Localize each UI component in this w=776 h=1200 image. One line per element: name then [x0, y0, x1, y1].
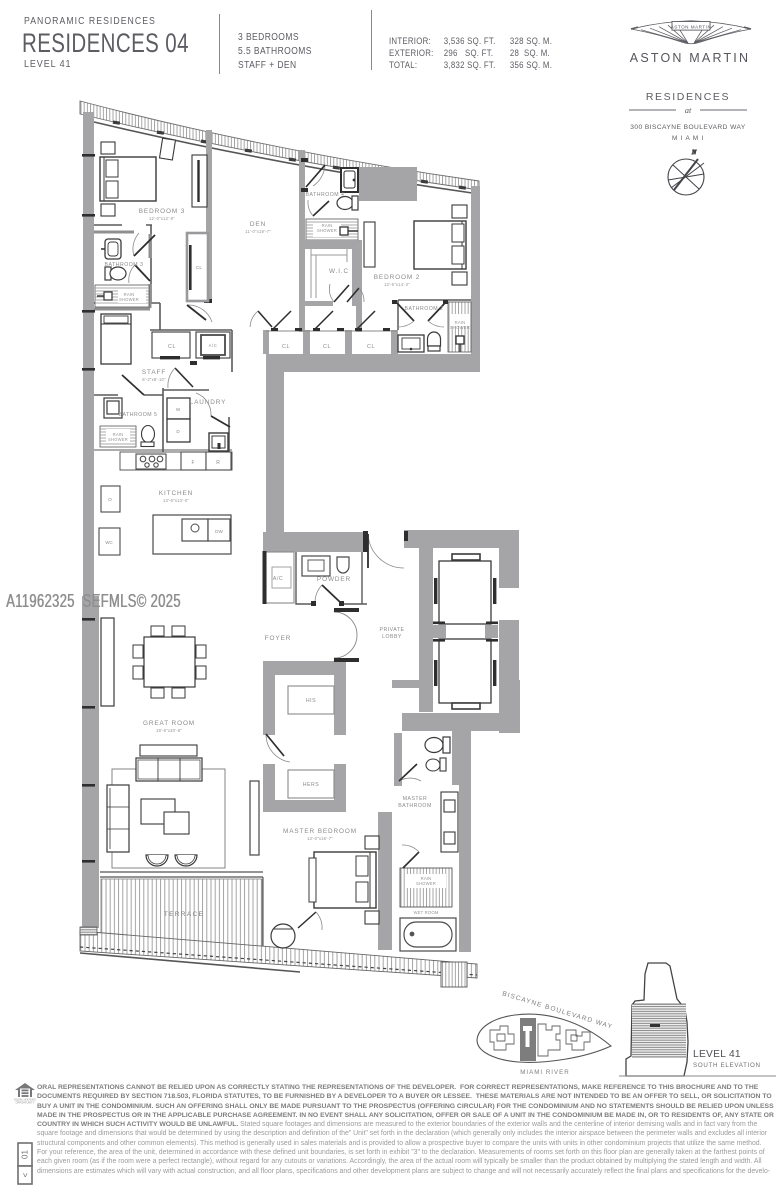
svg-text:LOBBY: LOBBY	[382, 634, 402, 640]
svg-text:13'-0"x16'-7": 13'-0"x16'-7"	[307, 836, 333, 841]
svg-text:19'-6"x30'-6": 19'-6"x30'-6"	[156, 728, 182, 733]
svg-text:PRIVATE: PRIVATE	[380, 627, 405, 633]
svg-text:RESIDENCES: RESIDENCES	[646, 91, 730, 103]
svg-text:R: R	[216, 460, 220, 466]
svg-text:CL: CL	[367, 344, 375, 350]
svg-text:SHOWER: SHOWER	[317, 228, 337, 233]
svg-text:HERS: HERS	[303, 782, 319, 788]
svg-text:MASTER: MASTER	[403, 796, 428, 802]
svg-text:BATHROOM 2: BATHROOM 2	[405, 306, 444, 312]
svg-text:HIS: HIS	[306, 698, 316, 704]
svg-text:LAUNDRY: LAUNDRY	[190, 399, 227, 406]
svg-text:GREAT ROOM: GREAT ROOM	[143, 720, 195, 727]
svg-text:W: W	[176, 407, 181, 412]
svg-text:CL: CL	[168, 344, 176, 350]
svg-text:BATHROOM 3: BATHROOM 3	[105, 262, 144, 268]
svg-text:BEDROOM 3: BEDROOM 3	[139, 208, 185, 215]
svg-text:BATHROOM 4: BATHROOM 4	[306, 192, 345, 198]
svg-text:SHOWER: SHOWER	[119, 297, 139, 302]
svg-text:BATHROOM: BATHROOM	[398, 803, 432, 809]
svg-text:O: O	[108, 497, 112, 503]
svg-text:SHOWER: SHOWER	[416, 881, 436, 886]
svg-text:ASTON MARTIN: ASTON MARTIN	[671, 25, 712, 30]
svg-text:BEDROOM 2: BEDROOM 2	[374, 274, 420, 281]
svg-text:8'-2"x8'-10": 8'-2"x8'-10"	[142, 377, 166, 382]
svg-text:CL: CL	[282, 344, 290, 350]
svg-text:WET ROOM: WET ROOM	[413, 910, 438, 915]
svg-text:OPPORTUNITY: OPPORTUNITY	[16, 1100, 35, 1104]
svg-text:01: 01	[21, 1150, 30, 1159]
svg-text:13'-6"x13'-0": 13'-6"x13'-0"	[163, 498, 189, 503]
svg-text:FOYER: FOYER	[265, 635, 292, 642]
svg-text:DEN: DEN	[250, 221, 266, 228]
svg-text:A/C: A/C	[209, 343, 218, 348]
svg-text:11'-0"x19'-7": 11'-0"x19'-7"	[245, 229, 271, 234]
svg-text:CL: CL	[323, 344, 331, 350]
svg-text:LEVEL 41: LEVEL 41	[693, 1049, 741, 1060]
svg-text:BATHROOM 5: BATHROOM 5	[119, 412, 158, 418]
svg-text:M I A M I: M I A M I	[672, 135, 704, 142]
svg-text:F: F	[191, 460, 194, 466]
svg-text:WC: WC	[105, 540, 112, 545]
svg-text:MASTER BEDROOM: MASTER BEDROOM	[283, 828, 357, 835]
svg-text:ASTON MARTIN: ASTON MARTIN	[630, 51, 750, 65]
svg-text:MIAMI RIVER: MIAMI RIVER	[520, 1069, 570, 1076]
svg-text:<: <	[21, 1172, 30, 1177]
svg-text:SHOWER: SHOWER	[450, 325, 470, 330]
svg-text:SHOWER: SHOWER	[108, 437, 128, 442]
svg-text:SOUTH ELEVATION: SOUTH ELEVATION	[693, 1062, 761, 1069]
svg-text:DW: DW	[215, 529, 223, 534]
svg-text:W.I.C: W.I.C	[329, 268, 349, 275]
svg-text:13'-5"x14'-2": 13'-5"x14'-2"	[384, 282, 410, 287]
svg-text:POWDER: POWDER	[317, 576, 351, 583]
svg-text:TERRACE: TERRACE	[164, 911, 204, 918]
svg-text:STAFF: STAFF	[142, 369, 166, 376]
svg-text:at: at	[685, 105, 692, 115]
svg-text:A/C: A/C	[273, 576, 283, 582]
svg-text:12'-0"x12'-0": 12'-0"x12'-0"	[149, 216, 175, 221]
svg-text:N: N	[691, 149, 697, 156]
svg-text:CL: CL	[196, 265, 202, 271]
svg-text:KITCHEN: KITCHEN	[159, 490, 193, 497]
svg-text:300 BISCAYNE BOULEVARD WAY: 300 BISCAYNE BOULEVARD WAY	[630, 124, 746, 131]
